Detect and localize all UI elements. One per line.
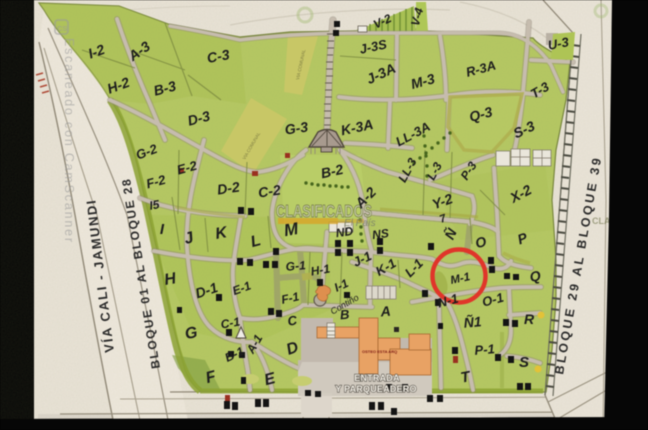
svg-text:G-3: G-3	[284, 118, 310, 137]
svg-text:ENTRADA: ENTRADA	[354, 373, 400, 383]
svg-text:Ñ1: Ñ1	[463, 312, 483, 331]
svg-text:S: S	[519, 354, 529, 371]
svg-text:G-1: G-1	[285, 258, 306, 274]
svg-text:A: A	[379, 303, 391, 320]
svg-text:P-1: P-1	[474, 341, 495, 358]
svg-text:D-2: D-2	[216, 179, 241, 198]
svg-text:Y PARQUEADERO: Y PARQUEADERO	[335, 384, 416, 394]
svg-text:C-2: C-2	[257, 182, 282, 201]
svg-text:ND: ND	[335, 224, 354, 240]
svg-text:R: R	[524, 311, 535, 327]
svg-text:NS: NS	[371, 226, 389, 242]
svg-text:Escaneado con CamScanner: Escaneado con CamScanner	[62, 38, 76, 244]
svg-text:OSTEO ESTA ARQ: OSTEO ESTA ARQ	[362, 349, 397, 354]
svg-text:CS: CS	[57, 24, 67, 33]
